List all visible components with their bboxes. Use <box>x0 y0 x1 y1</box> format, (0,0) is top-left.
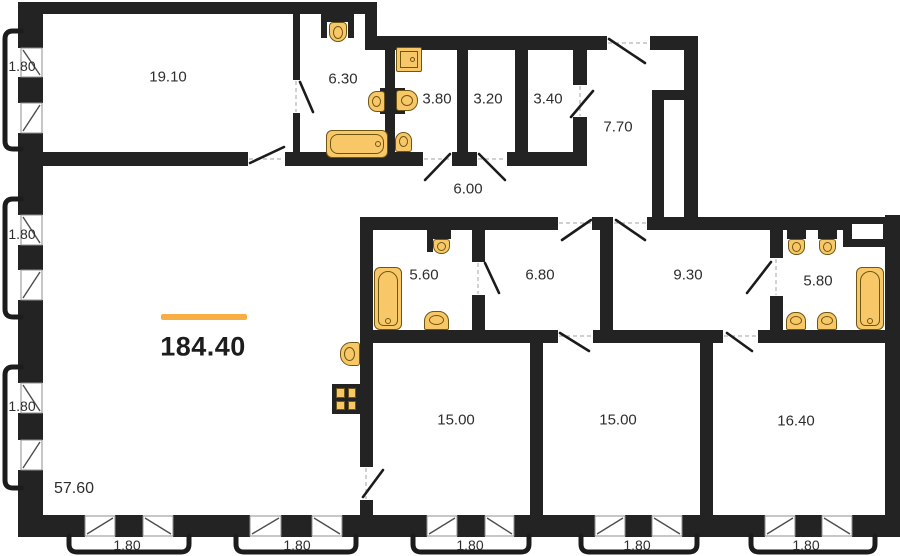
wall-segment <box>457 515 485 537</box>
window-casement <box>87 518 113 534</box>
shaft-wall <box>652 90 684 100</box>
wall-segment <box>573 50 587 85</box>
wall-segment <box>795 515 822 537</box>
wall-segment <box>625 515 652 537</box>
door-leaf <box>609 39 645 63</box>
wall-segment <box>852 515 900 537</box>
stove-burner <box>348 388 357 398</box>
window-width-label: 1.80 <box>113 538 140 552</box>
wall-segment <box>573 117 587 152</box>
wall-segment <box>770 230 783 258</box>
door-leaf <box>571 91 593 117</box>
room-area-label: 5.60 <box>409 268 438 283</box>
wall-segment <box>514 515 595 537</box>
wall-segment <box>360 500 373 515</box>
window-casement <box>824 518 850 534</box>
wall-segment <box>18 2 43 48</box>
wall-segment <box>362 330 558 343</box>
plan-symbols <box>0 0 900 556</box>
wall-segment <box>457 50 468 152</box>
room-area-label: 6.00 <box>453 182 482 197</box>
wall-segment <box>18 152 248 166</box>
window-casement <box>23 105 40 131</box>
window-casement <box>314 518 340 534</box>
wash-sink <box>396 90 418 111</box>
window-width-label: 1.80 <box>8 59 35 73</box>
window-width-label: 1.80 <box>283 538 310 552</box>
wall-segment <box>515 50 528 152</box>
room-area-label: 6.80 <box>525 268 554 283</box>
wash-sink <box>817 312 837 330</box>
wall-segment <box>281 515 312 537</box>
shaft-opening <box>852 224 883 239</box>
shaft-wall <box>652 90 664 217</box>
toilet <box>329 22 347 42</box>
wall-segment <box>472 295 485 330</box>
window <box>652 516 682 536</box>
window <box>427 516 457 536</box>
wall-segment <box>293 14 300 80</box>
door-leaf <box>485 263 499 293</box>
wall-segment <box>682 515 765 537</box>
window <box>143 516 173 536</box>
wash-sink <box>786 312 806 330</box>
window <box>485 516 514 536</box>
toilet-tank <box>818 230 837 239</box>
wall-segment <box>452 152 477 166</box>
wash-sink <box>424 311 449 330</box>
door-leaf <box>250 147 284 163</box>
room-area-label: 5.80 <box>803 274 832 289</box>
wall-segment <box>18 300 43 383</box>
room-area-label: 19.10 <box>149 70 187 85</box>
toilet <box>395 132 412 152</box>
door-leaf <box>727 333 752 351</box>
window-width-label: 1.80 <box>792 538 819 552</box>
room-area-label: 3.40 <box>533 92 562 107</box>
wall-segment <box>507 152 587 166</box>
window <box>595 516 625 536</box>
toilet-tank <box>787 230 806 239</box>
window <box>85 516 115 536</box>
wall-segment <box>530 343 543 515</box>
wall-segment <box>593 330 723 343</box>
door-leaf <box>560 333 589 351</box>
door-leaf <box>562 220 591 240</box>
wall-segment <box>18 515 85 537</box>
window-width-label: 1.80 <box>456 538 483 552</box>
shower-cabin <box>396 47 422 72</box>
toilet-tank <box>327 14 349 22</box>
wall-segment <box>18 245 43 270</box>
room-area-label: 15.00 <box>599 413 637 428</box>
bathtub <box>326 130 388 158</box>
room-area-label: 9.30 <box>673 268 702 283</box>
window-casement <box>145 518 171 534</box>
wall-segment <box>342 515 427 537</box>
window-casement <box>654 518 680 534</box>
stove-burner <box>336 388 345 398</box>
toilet <box>819 239 836 255</box>
wall-segment <box>115 515 143 537</box>
wall-segment <box>18 413 43 440</box>
bathtub <box>374 267 402 330</box>
wall-segment <box>592 217 613 230</box>
wall-segment <box>18 133 43 215</box>
window-width-label: 1.80 <box>8 399 35 413</box>
door-leaf <box>747 262 771 293</box>
door-leaf <box>425 154 450 180</box>
room-area-label: 7.70 <box>603 120 632 135</box>
wall-segment <box>700 343 713 515</box>
bathtub <box>856 267 884 330</box>
total-area-underline <box>161 314 247 320</box>
wall-segment <box>362 217 558 230</box>
window <box>21 440 42 470</box>
window-casement <box>252 518 279 534</box>
wall-segment <box>18 2 377 14</box>
room-area-label: 6.30 <box>328 72 357 87</box>
window-casement <box>767 518 793 534</box>
wall-segment <box>885 215 900 537</box>
toilet-tank <box>431 230 451 239</box>
wall-segment <box>770 296 783 330</box>
window-width-label: 1.80 <box>8 227 35 241</box>
wall-segment <box>293 113 300 152</box>
room-area-label: 3.20 <box>473 92 502 107</box>
window <box>312 516 342 536</box>
section-area-label: 57.60 <box>54 481 94 497</box>
total-area-label: 184.40 <box>160 334 246 361</box>
kitchen-stove <box>332 384 360 414</box>
window <box>822 516 852 536</box>
wall-segment <box>600 230 613 330</box>
window-casement <box>487 518 512 534</box>
room-area-label: 15.00 <box>437 413 475 428</box>
stove-burner <box>336 401 345 411</box>
room-area-label: 3.80 <box>422 92 451 107</box>
window-casement <box>23 442 40 468</box>
window-width-label: 1.80 <box>623 538 650 552</box>
room-area-label: 16.40 <box>777 414 815 429</box>
window <box>250 516 281 536</box>
toilet <box>788 239 805 255</box>
window <box>765 516 795 536</box>
door-leaf <box>363 470 383 497</box>
wall-segment <box>758 330 900 343</box>
wash-sink <box>340 342 360 366</box>
window <box>21 270 42 300</box>
door-leaf <box>479 154 505 180</box>
wall-segment <box>472 230 485 262</box>
window <box>21 103 42 133</box>
wall-segment <box>684 36 698 217</box>
door-leaf <box>300 82 313 112</box>
wash-sink <box>368 91 385 112</box>
wall-segment <box>173 515 250 537</box>
toilet <box>433 239 450 254</box>
stove-burner <box>348 401 357 411</box>
window-casement <box>23 272 40 298</box>
wall-segment <box>18 77 43 103</box>
floor-plan: 19.10 6.30 3.80 3.20 3.40 7.70 6.00 5.60… <box>0 0 900 556</box>
window-casement <box>429 518 455 534</box>
door-leaf <box>616 220 645 240</box>
window-casement <box>597 518 623 534</box>
